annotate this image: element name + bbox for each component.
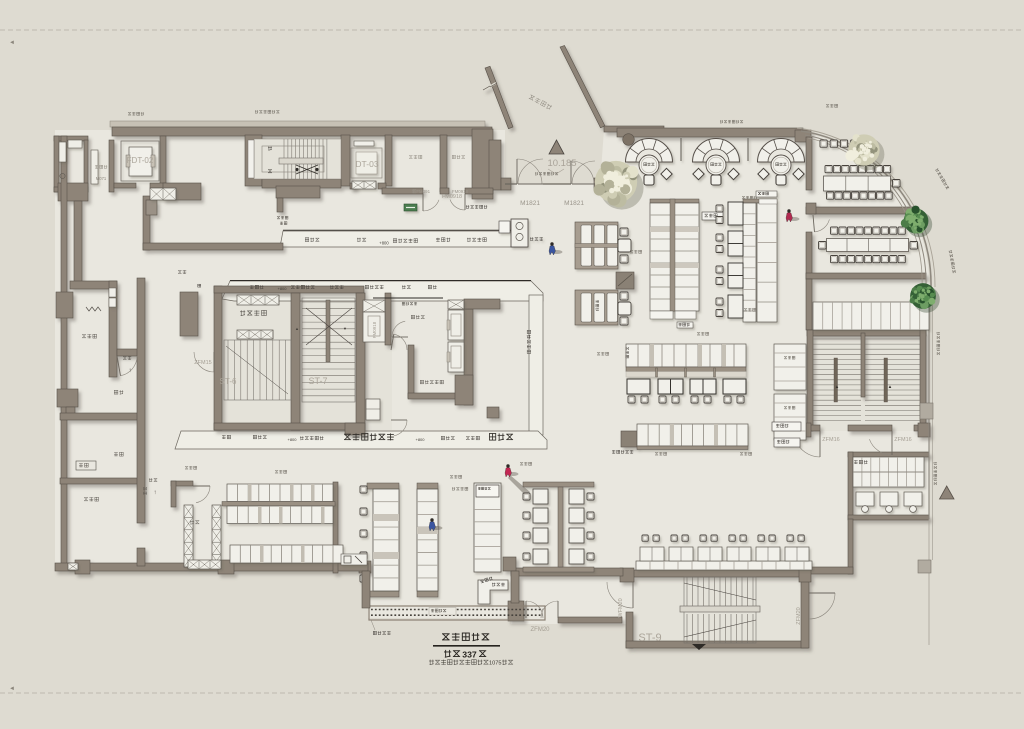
svg-text:WFM20: WFM20 — [618, 598, 624, 617]
svg-text:ZFM16: ZFM16 — [822, 437, 839, 443]
svg-text:M071: M071 — [96, 176, 107, 181]
svg-text:ST-9: ST-9 — [638, 632, 661, 644]
svg-text:+800: +800 — [287, 437, 297, 442]
svg-text:ZFM15: ZFM15 — [194, 360, 211, 366]
svg-text:+800: +800 — [379, 241, 389, 246]
svg-text:▲: ▲ — [888, 384, 892, 389]
svg-text:◄: ◄ — [9, 40, 15, 46]
svg-text:M1821: M1821 — [520, 200, 540, 207]
svg-text:新FM091: 新FM091 — [412, 188, 431, 195]
svg-text:ZFM20: ZFM20 — [530, 627, 550, 633]
svg-text:▲: ▲ — [835, 384, 839, 389]
svg-text:▲: ▲ — [295, 326, 299, 331]
svg-text:FM0918: FM0918 — [442, 194, 462, 200]
svg-text:10.185: 10.185 — [547, 158, 576, 169]
svg-text:◄: ◄ — [9, 686, 15, 692]
svg-text:+800: +800 — [415, 437, 425, 442]
svg-text:▼: ▼ — [343, 326, 347, 331]
svg-text:FM0918: FM0918 — [452, 189, 469, 194]
svg-text:↑: ↑ — [129, 368, 132, 374]
svg-text:ZFM20: ZFM20 — [796, 607, 802, 624]
svg-text:ST-6: ST-6 — [220, 377, 237, 386]
svg-text:+800: +800 — [277, 286, 287, 291]
svg-text:FM0918: FM0918 — [372, 321, 377, 338]
svg-text:↑: ↑ — [154, 490, 157, 496]
svg-text:M1821: M1821 — [564, 200, 584, 207]
svg-text:1075: 1075 — [489, 661, 501, 667]
svg-text:ST-7: ST-7 — [308, 376, 327, 386]
svg-text:FDT-02: FDT-02 — [127, 156, 154, 165]
svg-text:ZFM16: ZFM16 — [894, 437, 911, 443]
svg-text:DT-03: DT-03 — [355, 159, 378, 169]
svg-text:337: 337 — [462, 649, 477, 659]
